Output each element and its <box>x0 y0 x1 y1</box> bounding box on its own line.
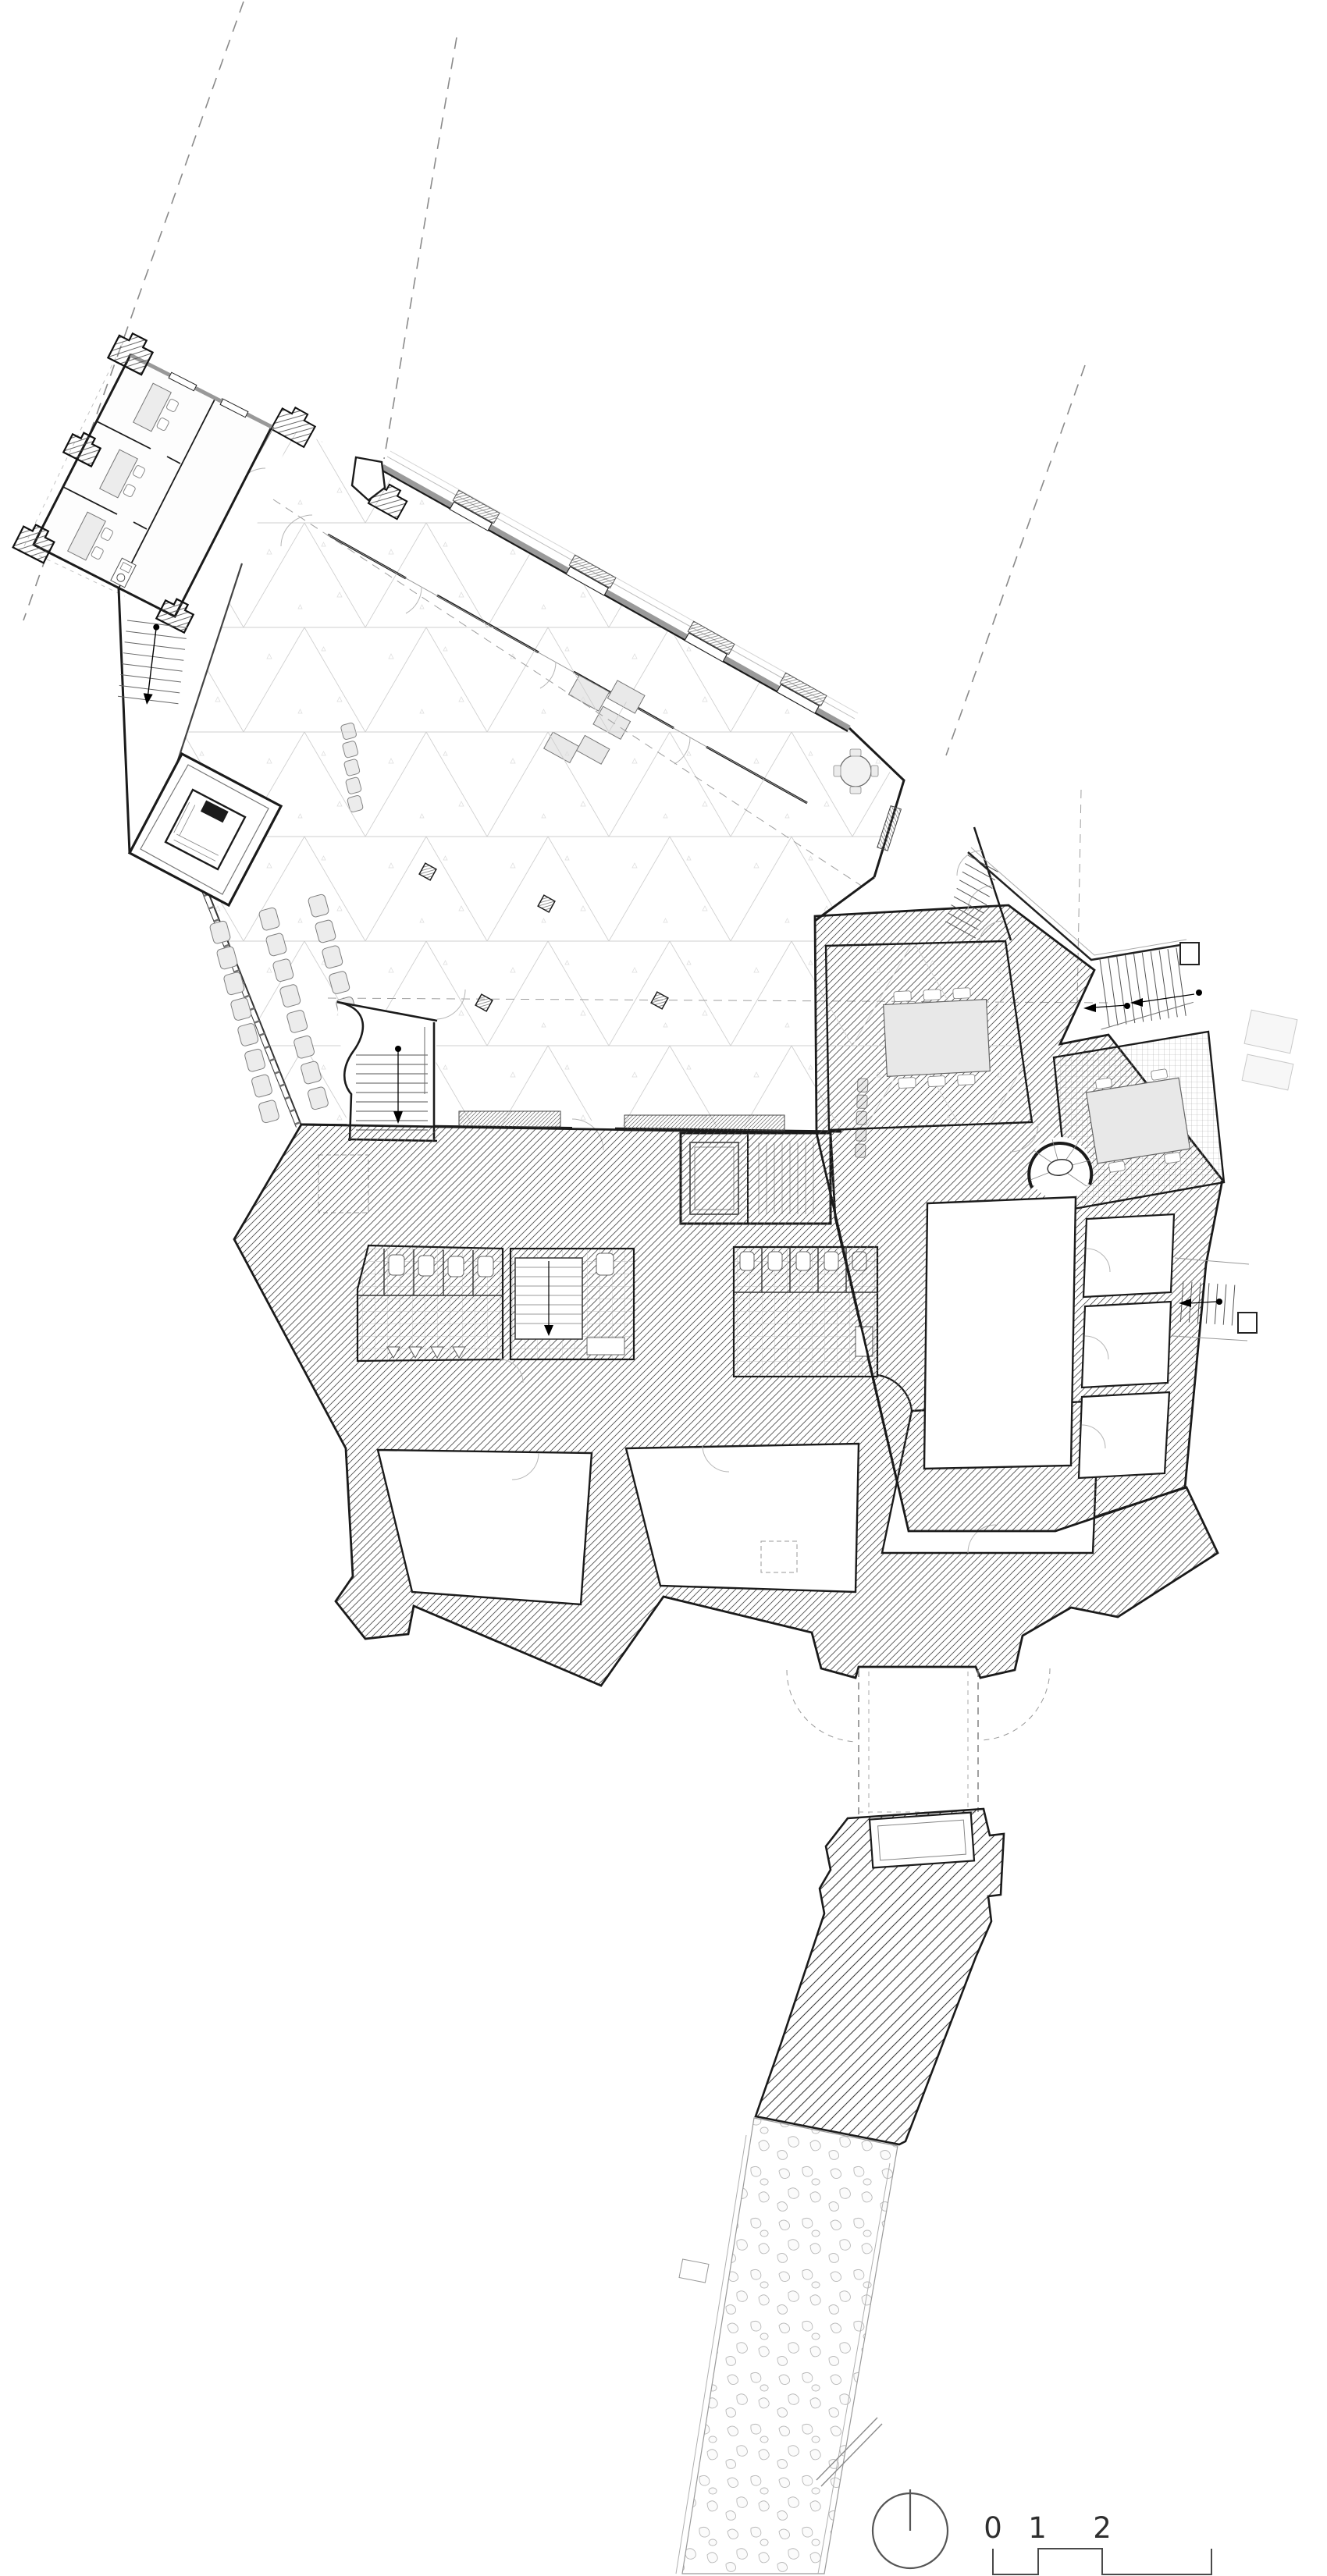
east-room-row <box>1079 1214 1174 1478</box>
scale-label-0: 0 <box>984 2511 1002 2545</box>
ghost-fittings <box>1242 1010 1297 1090</box>
floor-plan-drawing: 0 1 2 <box>0 0 1327 2576</box>
path-step <box>679 2259 709 2283</box>
north-indicator-icon <box>873 2489 948 2568</box>
scale-bar: 0 1 2 <box>984 2511 1211 2574</box>
window-bench <box>459 1111 560 1127</box>
right-wing <box>815 827 1297 1531</box>
garden-path <box>676 2118 898 2574</box>
scale-label-1: 1 <box>1028 2511 1047 2545</box>
plan-sheet: 0 1 2 <box>0 0 1327 2576</box>
office-wing <box>13 329 272 633</box>
room-sw <box>378 1450 592 1604</box>
room-center <box>626 1444 859 1592</box>
window-bench <box>624 1115 784 1131</box>
east-big-room <box>924 1197 1076 1469</box>
wc-middle <box>511 1249 634 1359</box>
wc-left <box>358 1245 503 1361</box>
entry-recess <box>870 1813 974 1868</box>
scale-label-2: 2 <box>1093 2511 1112 2545</box>
round-table <box>840 755 871 787</box>
spiral-stair <box>1029 1137 1091 1199</box>
detached-building <box>756 1809 1004 2144</box>
scale-bar-profile <box>993 2549 1211 2574</box>
link-passage <box>787 1668 1050 1815</box>
